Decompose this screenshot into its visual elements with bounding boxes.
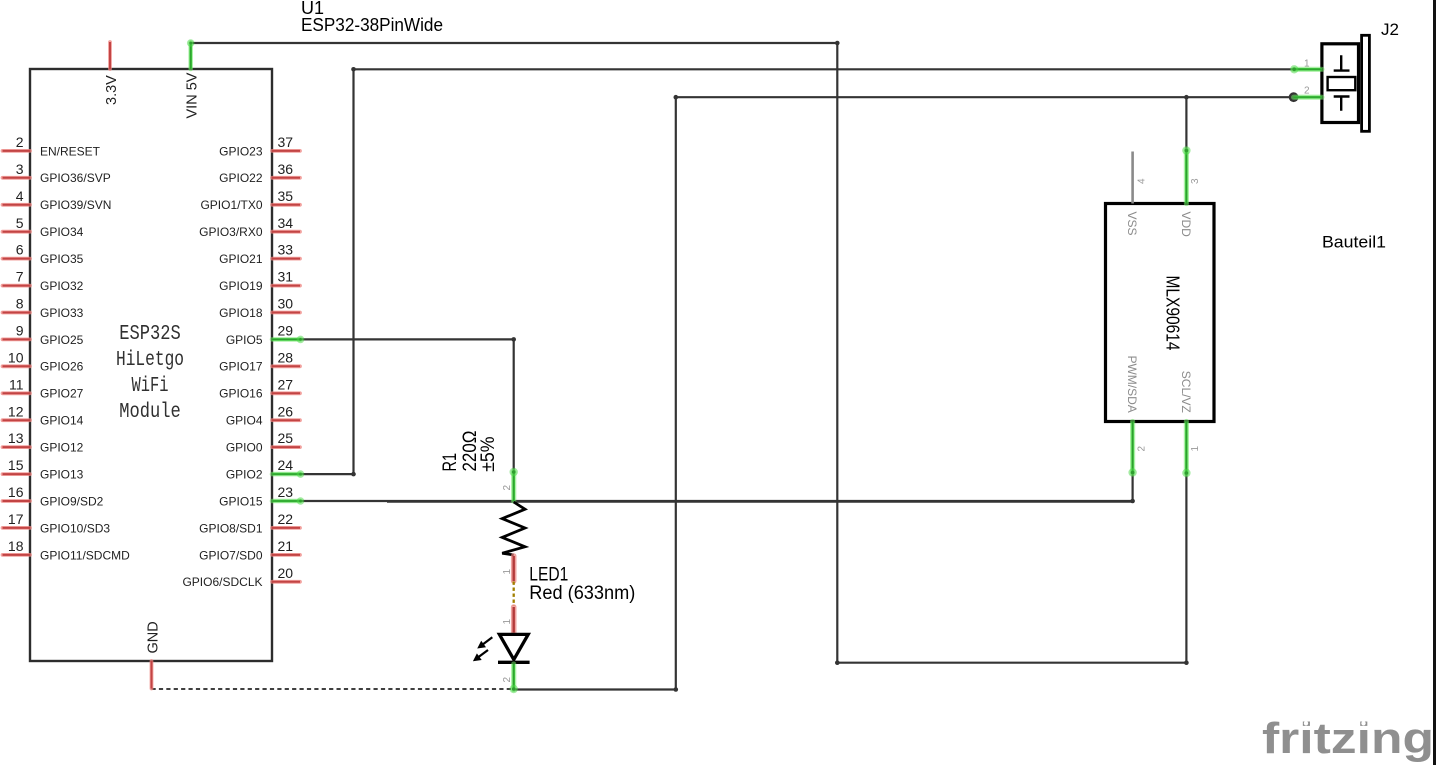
svg-text:GPIO0: GPIO0	[226, 441, 263, 455]
svg-text:GPIO17: GPIO17	[219, 360, 263, 374]
svg-text:30: 30	[278, 296, 294, 312]
svg-text:GPIO39/SVN: GPIO39/SVN	[40, 198, 111, 212]
svg-text:21: 21	[278, 538, 294, 554]
svg-text:GPIO16: GPIO16	[219, 387, 263, 401]
svg-text:GPIO25: GPIO25	[40, 333, 84, 347]
svg-text:GPIO22: GPIO22	[219, 171, 263, 185]
svg-text:GPIO12: GPIO12	[40, 441, 84, 455]
svg-text:GPIO9/SD2: GPIO9/SD2	[40, 494, 104, 508]
svg-text:2: 2	[16, 134, 24, 150]
svg-text:28: 28	[278, 349, 294, 365]
svg-text:GPIO14: GPIO14	[40, 414, 84, 428]
svg-text:GPIO2: GPIO2	[226, 468, 263, 482]
svg-text:GPIO15: GPIO15	[219, 494, 263, 508]
svg-text:34: 34	[278, 215, 294, 231]
svg-text:24: 24	[278, 457, 294, 473]
svg-text:WiFi: WiFi	[132, 375, 169, 398]
svg-text:26: 26	[278, 403, 294, 419]
svg-text:3: 3	[16, 161, 24, 177]
svg-text:EN/RESET: EN/RESET	[40, 144, 101, 158]
svg-text:10: 10	[8, 349, 24, 365]
svg-text:4: 4	[1137, 178, 1148, 184]
svg-text:ESP32S: ESP32S	[119, 323, 181, 346]
svg-text:20: 20	[278, 565, 294, 581]
svg-text:SCL/VZ: SCL/VZ	[1179, 371, 1193, 413]
svg-text:GPIO5: GPIO5	[226, 333, 263, 347]
svg-text:35: 35	[278, 188, 294, 204]
svg-text:1: 1	[1304, 59, 1310, 70]
svg-text:GPIO13: GPIO13	[40, 468, 84, 482]
svg-text:GPIO6/SDCLK: GPIO6/SDCLK	[182, 575, 262, 589]
svg-text:17: 17	[8, 511, 24, 527]
svg-text:37: 37	[278, 134, 294, 150]
svg-text:33: 33	[278, 242, 294, 258]
svg-text:GPIO18: GPIO18	[219, 306, 263, 320]
svg-text:Module: Module	[119, 401, 181, 424]
svg-text:PWM/SDA: PWM/SDA	[1125, 355, 1139, 412]
svg-text:2: 2	[1304, 86, 1310, 97]
svg-text:GPIO1/TX0: GPIO1/TX0	[200, 198, 262, 212]
svg-text:15: 15	[8, 457, 24, 473]
svg-text:2: 2	[1137, 446, 1148, 452]
svg-text:11: 11	[9, 376, 24, 392]
svg-text:GPIO36/SVP: GPIO36/SVP	[40, 171, 111, 185]
svg-text:3.3V: 3.3V	[104, 75, 120, 105]
svg-text:GPIO3/RX0: GPIO3/RX0	[199, 225, 263, 239]
svg-text:MLX90614: MLX90614	[1163, 276, 1183, 351]
svg-text:GND: GND	[146, 621, 162, 653]
svg-text:fritzing: fritzing	[1262, 714, 1434, 763]
svg-text:3: 3	[1190, 178, 1201, 184]
svg-text:13: 13	[8, 430, 24, 446]
svg-text:1: 1	[502, 619, 513, 625]
svg-text:GPIO26: GPIO26	[40, 360, 84, 374]
svg-text:27: 27	[278, 376, 294, 392]
svg-text:GPIO27: GPIO27	[40, 387, 84, 401]
svg-text:22: 22	[278, 511, 294, 527]
svg-text:29: 29	[278, 323, 294, 339]
svg-text:GPIO19: GPIO19	[219, 279, 263, 293]
svg-text:VSS: VSS	[1125, 212, 1139, 236]
svg-text:R1: R1	[439, 453, 461, 472]
svg-text:2: 2	[502, 485, 513, 491]
svg-text:23: 23	[278, 484, 294, 500]
svg-text:ESP32-38PinWide: ESP32-38PinWide	[301, 15, 443, 35]
svg-text:7: 7	[16, 269, 24, 285]
svg-text:5: 5	[16, 215, 24, 231]
svg-text:GPIO32: GPIO32	[40, 279, 84, 293]
svg-text:2: 2	[502, 677, 513, 683]
svg-text:16: 16	[8, 484, 24, 500]
svg-text:1: 1	[1190, 446, 1201, 452]
svg-text:GPIO33: GPIO33	[40, 306, 84, 320]
svg-text:GPIO35: GPIO35	[40, 252, 84, 266]
svg-text:GPIO7/SD0: GPIO7/SD0	[199, 548, 263, 562]
svg-text:1: 1	[502, 569, 513, 575]
svg-text:J2: J2	[1381, 20, 1399, 39]
svg-text:GPIO21: GPIO21	[219, 252, 263, 266]
svg-text:GPIO10/SD3: GPIO10/SD3	[40, 521, 110, 535]
svg-text:GPIO8/SD1: GPIO8/SD1	[199, 521, 263, 535]
svg-text:Red (633nm): Red (633nm)	[529, 583, 635, 604]
svg-text:VIN 5V: VIN 5V	[185, 72, 201, 118]
svg-text:8: 8	[16, 296, 24, 312]
svg-text:VDD: VDD	[1179, 212, 1193, 238]
svg-text:36: 36	[278, 161, 294, 177]
svg-text:GPIO4: GPIO4	[226, 414, 263, 428]
svg-text:18: 18	[8, 538, 24, 554]
svg-text:GPIO23: GPIO23	[219, 144, 263, 158]
svg-text:12: 12	[8, 403, 24, 419]
svg-text:±5%: ±5%	[477, 437, 499, 472]
svg-text:25: 25	[278, 430, 294, 446]
svg-text:9: 9	[16, 323, 24, 339]
svg-text:Bauteil1: Bauteil1	[1322, 234, 1386, 252]
svg-text:31: 31	[278, 269, 294, 285]
svg-text:6: 6	[16, 242, 24, 258]
svg-text:4: 4	[16, 188, 24, 204]
svg-text:GPIO34: GPIO34	[40, 225, 84, 239]
svg-text:GPIO11/SDCMD: GPIO11/SDCMD	[40, 548, 130, 562]
svg-text:HiLetgo: HiLetgo	[116, 349, 184, 372]
